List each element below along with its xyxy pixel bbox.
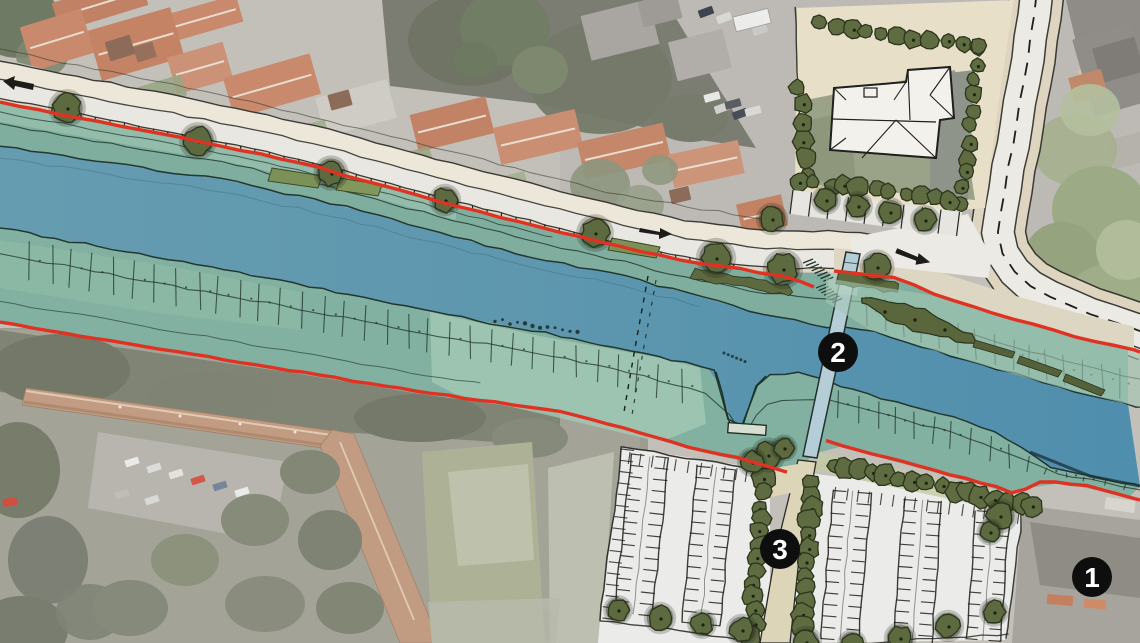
svg-text:3: 3	[772, 534, 788, 565]
svg-text:2: 2	[830, 337, 846, 368]
svg-text:1: 1	[1084, 562, 1100, 593]
